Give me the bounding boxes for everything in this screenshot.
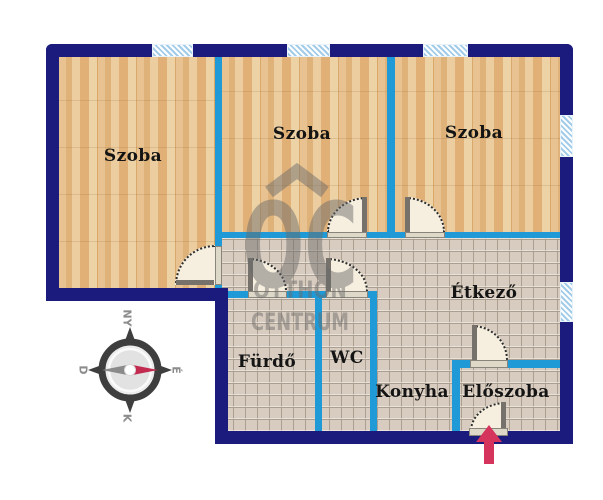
door-szoba-left-leaf — [176, 280, 214, 285]
window-right-upper — [560, 115, 573, 157]
entrance-arrow-icon — [476, 425, 502, 465]
door-eloszoba-leaf — [472, 325, 477, 360]
label-szoba-right: Szoba — [445, 123, 503, 143]
window-top-middle — [287, 44, 330, 57]
wall-outer-right — [560, 44, 573, 444]
compass-label-ny: NY — [121, 310, 134, 328]
door-szoba-right-sill — [405, 232, 445, 238]
floor-plan: OC OTTHON CENTRUM Szoba Szoba Szoba Étke… — [0, 0, 603, 500]
compass-rose: NY É K D — [75, 310, 187, 425]
wall-outer-left — [46, 44, 59, 301]
compass-label-e: É — [170, 366, 183, 374]
watermark-line2: CENTRUM — [251, 307, 349, 335]
label-szoba-middle: Szoba — [273, 124, 331, 144]
compass-hub — [125, 365, 136, 376]
door-szoba-middle-leaf — [362, 197, 367, 232]
compass-label-k: K — [121, 414, 134, 423]
otthon-centrum-watermark: OC OTTHON CENTRUM — [245, 160, 355, 340]
window-right-dining — [560, 282, 573, 322]
wall-divider-middle-right — [387, 57, 395, 238]
window-top-left — [152, 44, 193, 57]
door-eloszoba-sill — [470, 360, 508, 368]
door-szoba-left-sill — [215, 246, 222, 285]
wall-outer-bottom — [215, 431, 573, 444]
label-szoba-left: Szoba — [104, 146, 162, 166]
window-top-right — [423, 44, 468, 57]
label-eloszoba: Előszoba — [462, 382, 549, 402]
label-wc: WC — [330, 348, 363, 368]
wall-hall-left — [452, 360, 460, 431]
wall-wc-right — [370, 291, 377, 431]
watermark-line1: OTTHON — [253, 277, 347, 304]
wall-section-left — [215, 288, 228, 444]
door-szoba-right-leaf — [405, 197, 410, 232]
wall-block-bottom — [46, 288, 228, 301]
label-konyha: Konyha — [375, 382, 449, 402]
compass-label-d: D — [77, 365, 90, 374]
label-furdo: Fürdő — [238, 352, 296, 372]
label-etkezo: Étkező — [451, 283, 518, 303]
